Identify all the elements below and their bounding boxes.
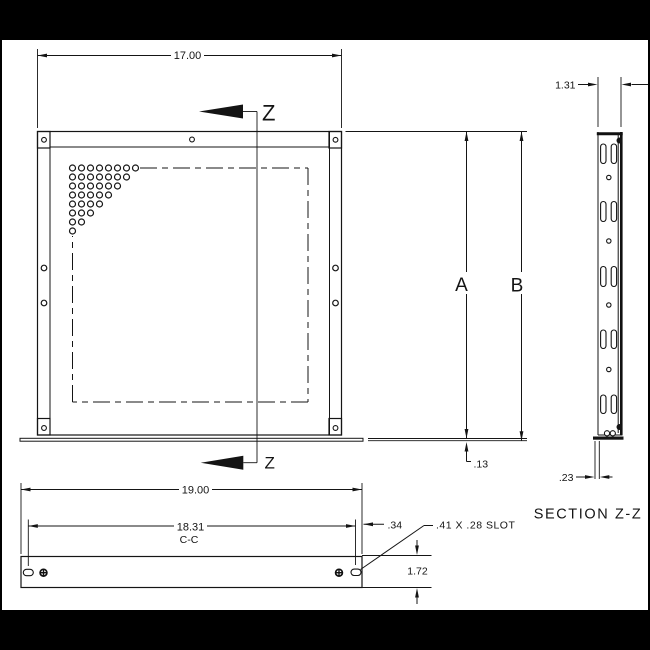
vent-hole: [88, 174, 94, 180]
channel-slot: [611, 267, 616, 287]
vent-hole: [97, 165, 103, 171]
vent-hole: [115, 165, 121, 171]
mount-hole: [333, 137, 338, 142]
vent-hole: [106, 192, 112, 198]
channel-slot: [601, 395, 606, 414]
vent-hole: [70, 228, 76, 234]
vent-hole: [124, 174, 130, 180]
vent-hole: [79, 174, 85, 180]
vent-hole: [88, 201, 94, 207]
channel-slot: [601, 267, 606, 287]
rail-hole: [333, 300, 339, 306]
mount-hole: [333, 426, 338, 431]
weld-dot: [617, 138, 623, 144]
mount-hole: [190, 137, 195, 142]
channel-hole: [607, 175, 611, 179]
dim-text-edge: .34: [388, 520, 403, 532]
vent-hole: [115, 183, 121, 189]
vent-hole: [88, 165, 94, 171]
mount-hole: [42, 137, 47, 142]
vent-hole: [106, 174, 112, 180]
technical-drawing: Z Z 17.00 A B .13: [0, 0, 650, 650]
dim-text-flange-thickness: .23: [559, 472, 574, 484]
center-mark: [335, 569, 343, 577]
channel-slot: [611, 330, 616, 349]
vent-hole: [79, 210, 85, 216]
channel-slot: [611, 144, 616, 164]
vent-hole: [133, 165, 139, 171]
rail-hole: [41, 300, 47, 306]
vent-hole: [70, 201, 76, 207]
channel-hole: [607, 303, 611, 307]
dim-text-bar-width: 19.00: [182, 485, 210, 497]
vent-hole: [106, 165, 112, 171]
dim-text-width: 17.00: [174, 50, 202, 62]
vent-hole: [97, 183, 103, 189]
vent-hole: [124, 165, 130, 171]
section-cut-label-top: Z: [262, 101, 275, 126]
vent-hole: [79, 192, 85, 198]
section-cut-label-bottom: Z: [265, 454, 275, 473]
vent-hole: [70, 165, 76, 171]
rail-hole: [333, 265, 339, 271]
vent-hole: [70, 192, 76, 198]
channel-hole: [607, 239, 611, 243]
dim-text-cc-label: C-C: [180, 534, 199, 546]
mount-slot: [351, 569, 361, 575]
vent-hole: [88, 183, 94, 189]
vent-hole: [79, 219, 85, 225]
channel-slot: [611, 395, 616, 414]
dim-text-bar-height: 1.72: [407, 566, 428, 578]
vent-hole: [70, 210, 76, 216]
dim-text-flange-offset: .13: [474, 459, 489, 471]
vent-hole: [115, 174, 121, 180]
weld-dot: [617, 424, 623, 430]
center-mark: [40, 569, 48, 577]
dim-text-a: A: [455, 275, 468, 296]
vent-hole: [88, 210, 94, 216]
vent-hole: [79, 183, 85, 189]
vent-hole: [70, 174, 76, 180]
channel-hole: [607, 367, 611, 371]
base-bump: [604, 431, 609, 436]
vent-hole: [97, 174, 103, 180]
base-flange: [593, 437, 624, 440]
channel-slot: [601, 202, 606, 222]
slot-note-text: .41 X .28 SLOT: [436, 520, 515, 532]
mount-hole: [42, 426, 47, 431]
mount-slot: [23, 569, 33, 575]
rail-hole: [41, 265, 47, 271]
vent-hole: [106, 183, 112, 189]
section-title: SECTION Z-Z: [534, 507, 643, 523]
vent-hole: [70, 219, 76, 225]
channel-slot: [611, 202, 616, 222]
dim-text-cc: 18.31: [177, 522, 205, 534]
vent-hole: [88, 192, 94, 198]
drawing-canvas: Z Z 17.00 A B .13: [0, 0, 650, 650]
vent-hole: [97, 201, 103, 207]
channel-slot: [601, 330, 606, 349]
vent-hole: [79, 201, 85, 207]
dim-text-section-width: 1.31: [555, 80, 576, 92]
channel-slot: [601, 144, 606, 164]
vent-hole: [97, 192, 103, 198]
drawing-sheet: [2, 40, 648, 610]
vent-hole: [79, 165, 85, 171]
base-bump: [610, 431, 615, 436]
dim-text-b: B: [511, 276, 524, 297]
vent-hole: [70, 183, 76, 189]
